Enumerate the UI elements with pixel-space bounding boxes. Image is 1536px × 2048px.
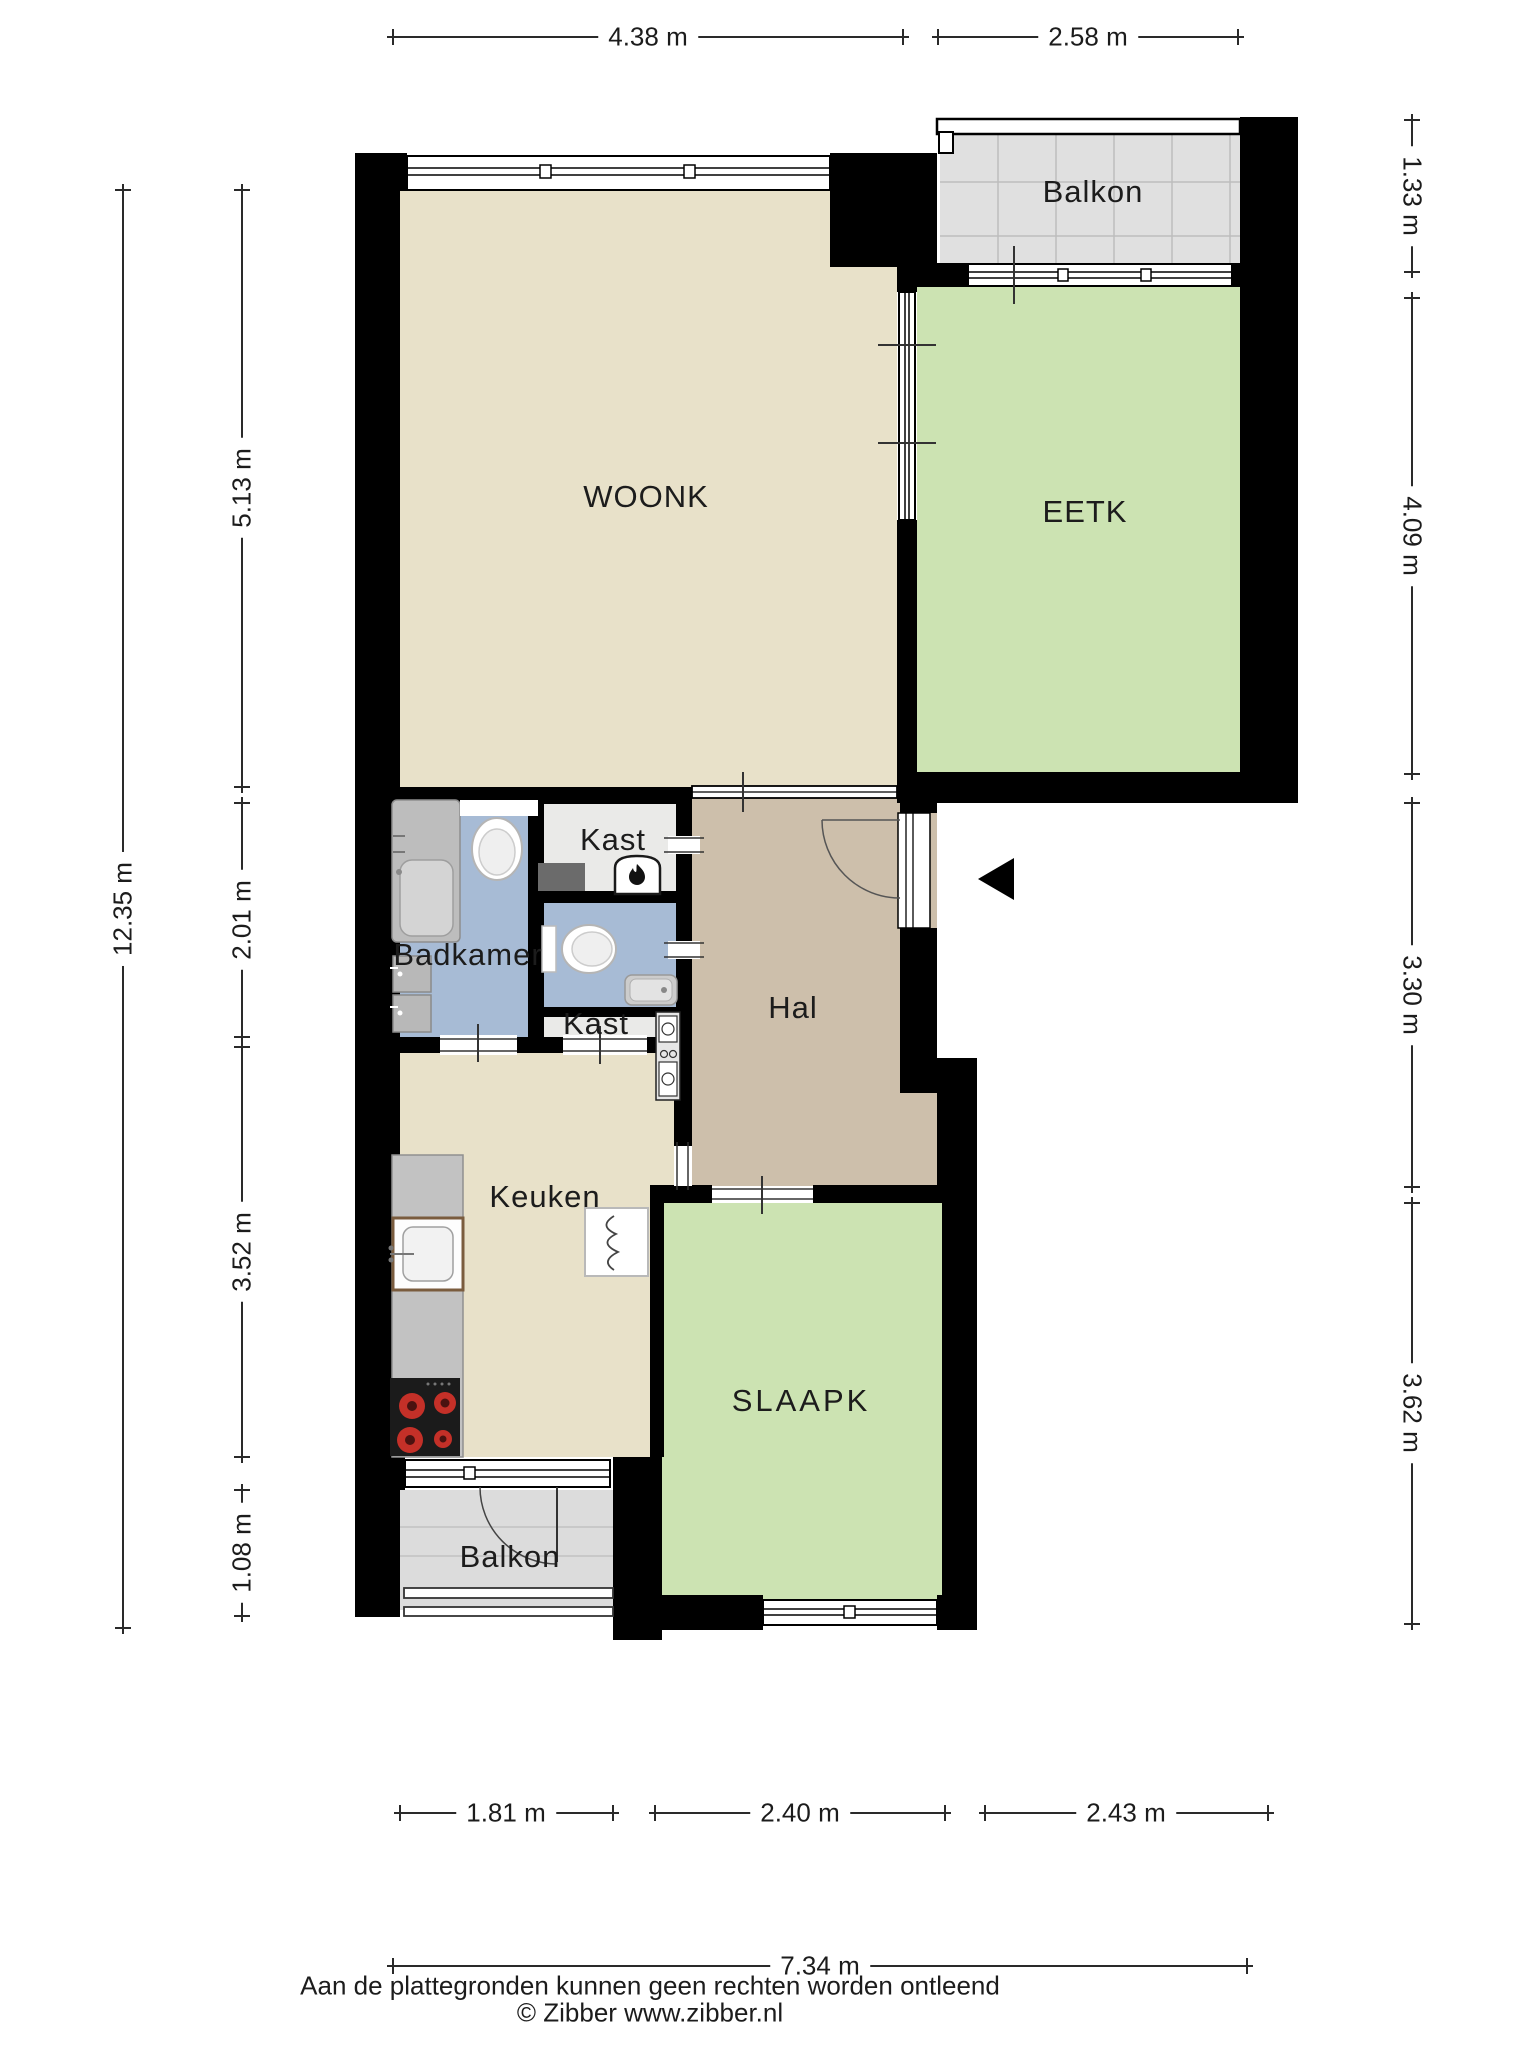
dim-right-1: 1.33 m: [1397, 146, 1428, 246]
room-label-kast1: Kast: [580, 822, 646, 858]
radiator-icon: [585, 1208, 648, 1276]
room-label-woonk: WOONK: [583, 479, 709, 515]
room-label-kast2: Kast: [563, 1006, 629, 1042]
wc-door: [664, 941, 704, 959]
room-label-keuken: Keuken: [489, 1179, 600, 1215]
shaft-block: [538, 863, 585, 891]
woonk-window: [407, 156, 830, 190]
room-label-balkon-bottom: Balkon: [460, 1539, 561, 1575]
entrance-arrow-icon: [978, 858, 1014, 900]
room-label-eetk: EETK: [1043, 494, 1128, 530]
keuken-hal-door: [674, 1142, 692, 1190]
bathtub-icon: [392, 800, 460, 942]
dim-left-4: 1.08 m: [227, 1503, 258, 1603]
kast1-door: [664, 836, 704, 854]
dim-right-3: 3.30 m: [1397, 945, 1428, 1045]
dim-right-4: 3.62 m: [1397, 1363, 1428, 1463]
dim-left-2: 2.01 m: [227, 870, 258, 970]
floorplan-page: WOONK EETK Balkon Badkamer Kast Kast Hal…: [0, 0, 1536, 2048]
kitchen-sink-icon: [389, 1218, 464, 1290]
room-label-slaapk: SLAAPK: [732, 1383, 871, 1419]
dim-top-2: 2.58 m: [1038, 22, 1138, 53]
dim-top-1: 4.38 m: [598, 22, 698, 53]
room-label-balkon-top: Balkon: [1043, 174, 1144, 210]
cooktop-icon: [390, 1378, 460, 1456]
dim-left-1: 5.13 m: [227, 438, 258, 538]
dim-left-3: 3.52 m: [227, 1202, 258, 1302]
dim-left-total: 12.35 m: [108, 852, 139, 966]
hand-basin-icon: [625, 975, 677, 1005]
dim-bottom-3: 2.43 m: [1076, 1798, 1176, 1829]
footer-copyright: © Zibber www.zibber.nl: [517, 1998, 783, 2029]
dim-bottom-2: 2.40 m: [750, 1798, 850, 1829]
meter-cupboard-icon: [656, 1012, 680, 1100]
room-label-badkamer: Badkamer: [393, 937, 542, 973]
slaapk-window: [763, 1600, 937, 1625]
room-label-hal: Hal: [768, 990, 818, 1026]
boiler-icon: [615, 856, 660, 894]
dim-right-2: 4.09 m: [1397, 486, 1428, 586]
toilet-wc-icon: [542, 925, 616, 973]
dim-bottom-1: 1.81 m: [456, 1798, 556, 1829]
